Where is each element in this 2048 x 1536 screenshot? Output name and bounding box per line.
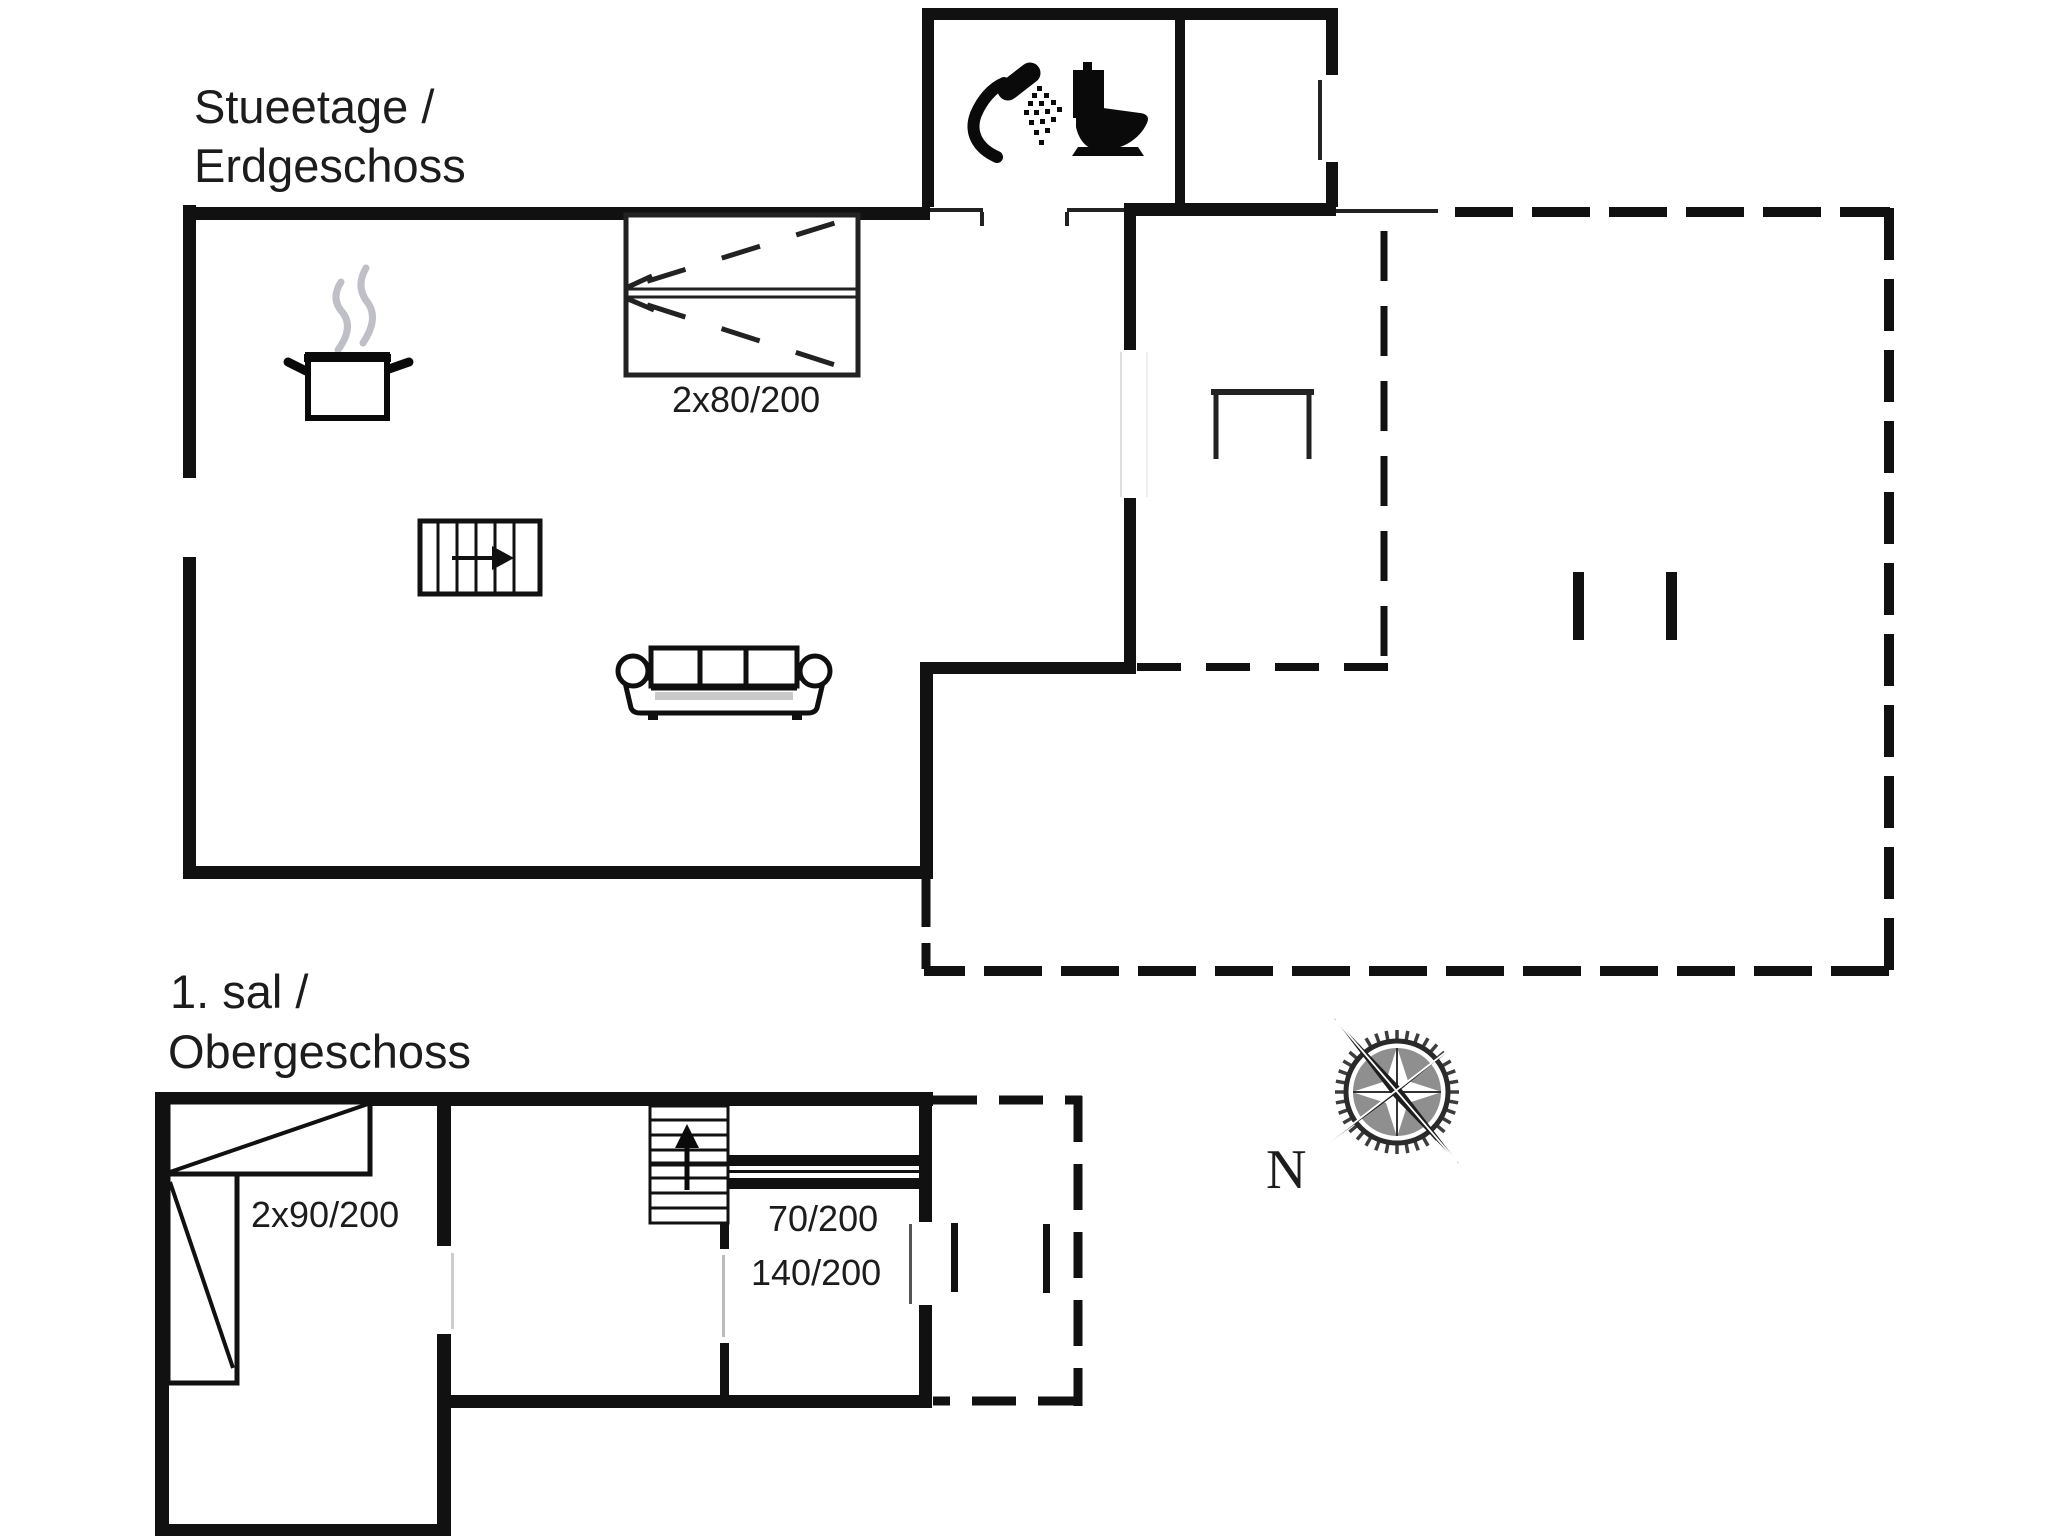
svg-text:N: N: [1266, 1139, 1306, 1201]
svg-text:Stueetage /: Stueetage /: [194, 80, 435, 133]
svg-text:Erdgeschoss: Erdgeschoss: [194, 139, 466, 192]
svg-text:Obergeschoss: Obergeschoss: [168, 1025, 471, 1078]
svg-text:2x90/200: 2x90/200: [251, 1194, 399, 1235]
svg-text:2x80/200: 2x80/200: [672, 379, 820, 420]
svg-text:140/200: 140/200: [751, 1252, 881, 1293]
svg-text:1. sal /: 1. sal /: [170, 965, 309, 1018]
svg-text:70/200: 70/200: [768, 1198, 878, 1239]
